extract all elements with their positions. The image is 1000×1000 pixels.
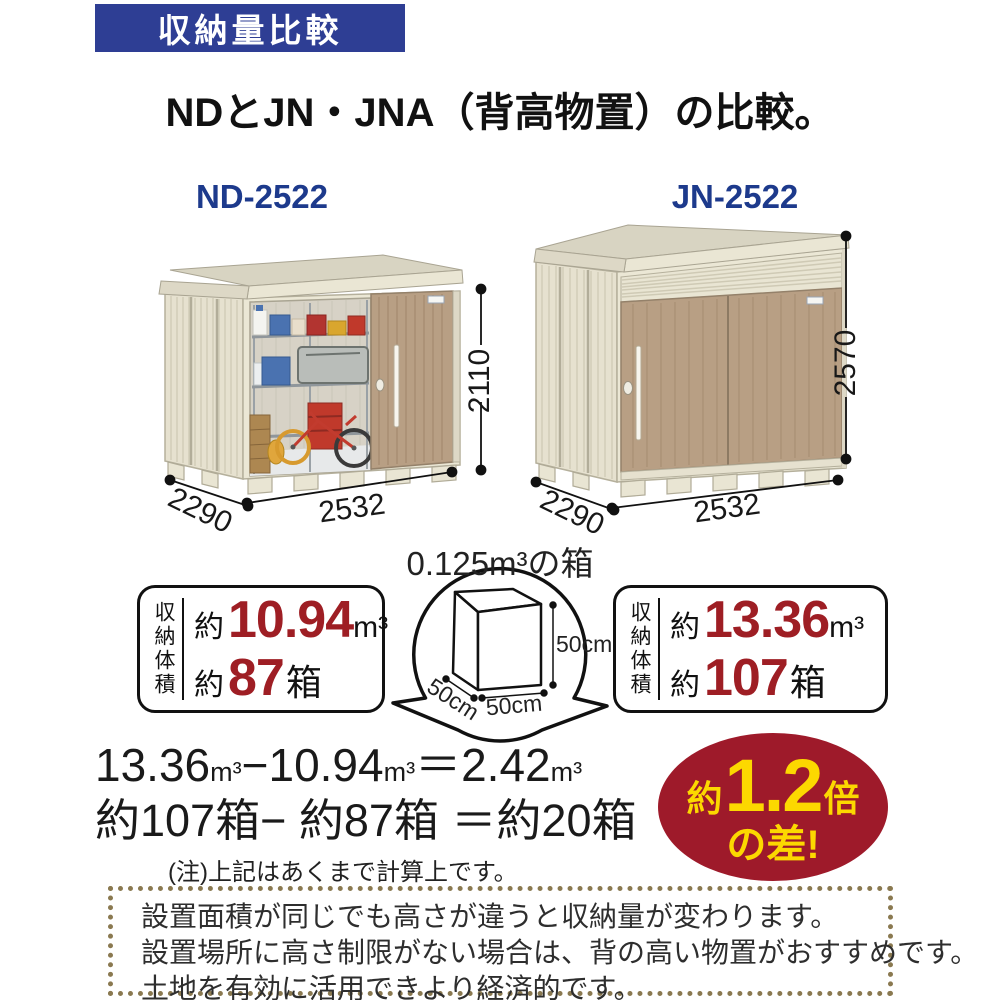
boxes-unit: 箱 bbox=[790, 665, 826, 701]
calc-result: 2.42 bbox=[461, 742, 551, 788]
badge-line1: 約 1.2 倍 bbox=[687, 749, 860, 823]
approx-prefix: 約 bbox=[670, 671, 700, 701]
dim-jn-height: 2570 bbox=[829, 318, 863, 408]
section-banner: 収納量比較 bbox=[95, 4, 405, 52]
banner-label: 収納量比較 bbox=[158, 4, 343, 52]
boxes-value: 87 bbox=[228, 652, 284, 704]
footer-line: 設置面積が同じでも高さが違うと収納量が変わります。 bbox=[141, 899, 888, 935]
capacity-nd-boxes-row: 約 87 箱 bbox=[194, 652, 388, 704]
footer-note-box: 設置面積が同じでも高さが違うと収納量が変わります。 設置場所に高さ制限がない場合… bbox=[108, 886, 893, 996]
badge-value: 1.2 bbox=[725, 749, 822, 823]
volume-value: 10.94 bbox=[228, 594, 353, 646]
calc-result-unit: m³ bbox=[551, 759, 582, 786]
reference-box-caption: 0.125m³の箱 bbox=[375, 537, 625, 585]
cube-dim-height: 50cm bbox=[556, 631, 620, 658]
capacity-box-nd: 収納体積 約 10.94 m³ 約 87 箱 bbox=[137, 585, 385, 713]
calc-b-unit: m³ bbox=[384, 759, 415, 786]
capacity-nd-volume-row: 約 10.94 m³ bbox=[194, 594, 388, 646]
dim-nd-height: 2110 bbox=[463, 336, 497, 426]
capacity-box-jn: 収納体積 約 13.36 m³ 約 107 箱 bbox=[613, 585, 888, 713]
approx-prefix: 約 bbox=[194, 671, 224, 701]
capacity-jn-volume-row: 約 13.36 m³ bbox=[670, 594, 885, 646]
badge-prefix: 約 bbox=[687, 781, 723, 817]
boxes-value: 107 bbox=[704, 652, 788, 704]
badge-suffix: 倍 bbox=[823, 781, 859, 817]
calc-b: 10.94 bbox=[268, 742, 383, 788]
infographic-canvas: 収納量比較 NDとJN・JNA（背高物置）の比較。 ND-2522 JN-252… bbox=[0, 0, 1000, 1000]
page-title: NDとJN・JNA（背高物置）の比較。 bbox=[0, 80, 1000, 138]
calc-note: (注)上記はあくまで計算上です。 bbox=[168, 852, 518, 887]
minus-sign: − bbox=[242, 742, 269, 788]
approx-prefix: 約 bbox=[194, 613, 224, 643]
calc-volume-line: 13.36 m³ − 10.94 m³ ＝ 2.42 m³ bbox=[95, 742, 582, 788]
volume-value: 13.36 bbox=[704, 594, 829, 646]
calc-boxes-line: 約107箱− 約87箱 ＝約20箱 bbox=[95, 798, 636, 843]
footer-line: 土地を有効に活用できより経済的です。 bbox=[141, 971, 888, 1000]
model-label-nd: ND-2522 bbox=[152, 178, 372, 216]
capacity-nd-label: 収納体積 bbox=[140, 588, 182, 710]
volume-unit: m³ bbox=[829, 613, 864, 643]
badge-line2: の差! bbox=[726, 825, 819, 865]
approx-prefix: 約 bbox=[670, 613, 700, 643]
cube-dim-width: 50cm bbox=[481, 689, 547, 721]
boxes-unit: 箱 bbox=[286, 665, 322, 701]
difference-badge: 約 1.2 倍 の差! bbox=[658, 733, 888, 881]
dimension-lines bbox=[140, 230, 900, 530]
model-label-jn: JN-2522 bbox=[625, 178, 845, 216]
calc-a-unit: m³ bbox=[210, 759, 241, 786]
capacity-jn-boxes-row: 約 107 箱 bbox=[670, 652, 885, 704]
footer-line: 設置場所に高さ制限がない場合は、背の高い物置がおすすめです。 bbox=[141, 935, 888, 971]
equals-sign: ＝ bbox=[415, 742, 461, 788]
cube-illustration bbox=[453, 589, 541, 690]
calc-a: 13.36 bbox=[95, 742, 210, 788]
